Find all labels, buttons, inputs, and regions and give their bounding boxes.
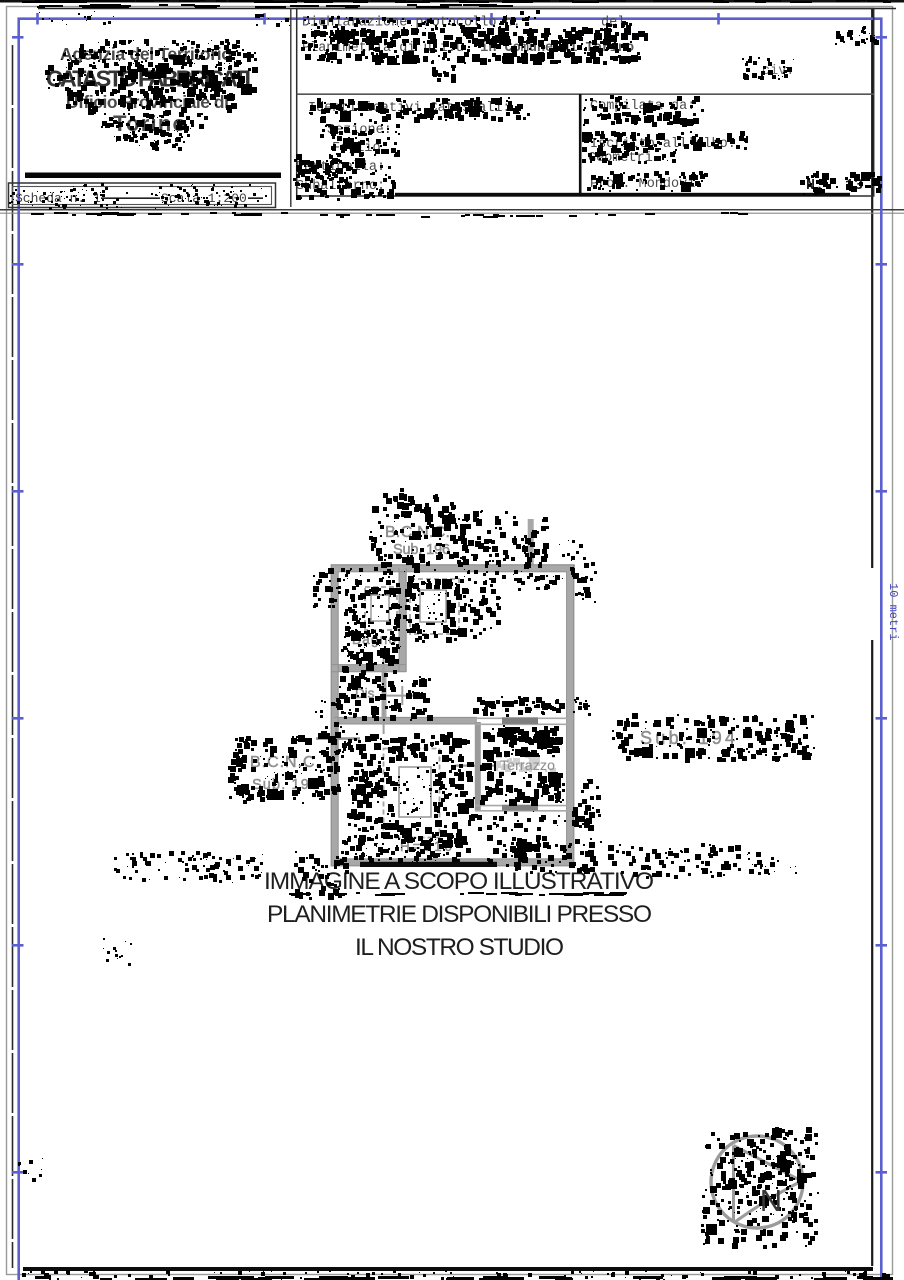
svg-text:Scheda n. 1: Scheda n. 1 (15, 191, 101, 206)
svg-text:PLANIMETRIE DISPONIBILI PRESSO: PLANIMETRIE DISPONIBILI PRESSO (267, 901, 652, 928)
svg-text:10 metri: 10 metri (886, 583, 900, 641)
svg-text:Terrazzo: Terrazzo (500, 758, 555, 773)
svg-text:N: N (760, 1183, 782, 1218)
svg-text:IL NOSTRO STUDIO: IL NOSTRO STUDIO (355, 934, 564, 961)
svg-text:Dis.: Dis. (355, 686, 378, 701)
